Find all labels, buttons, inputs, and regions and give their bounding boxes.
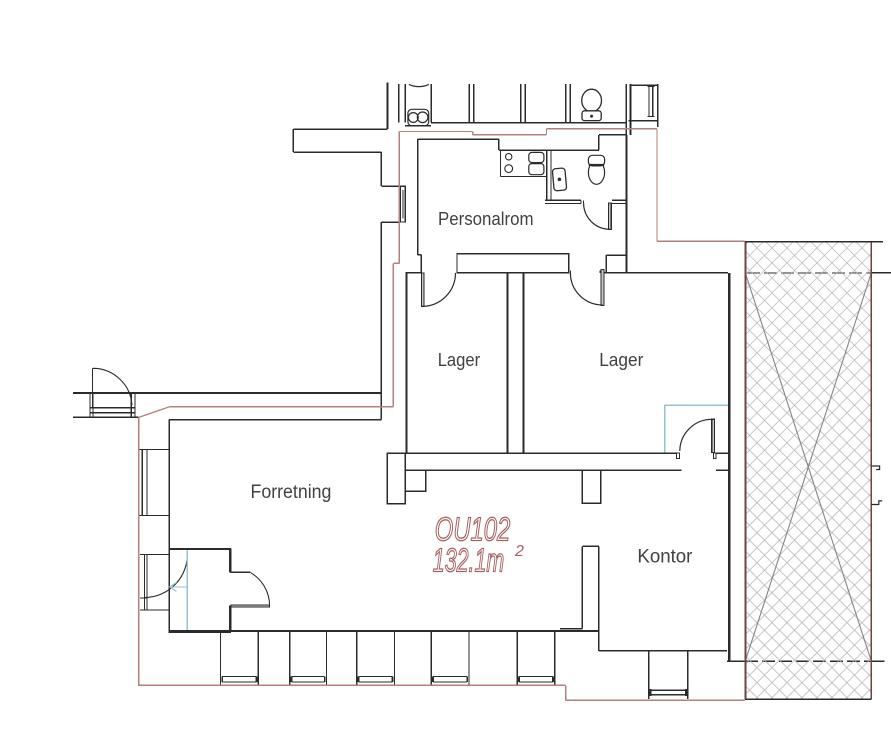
svg-text:Lager: Lager xyxy=(599,350,643,370)
svg-text:132.1m: 132.1m xyxy=(433,542,505,579)
svg-text:Forretning: Forretning xyxy=(251,482,332,503)
svg-text:Lager: Lager xyxy=(438,350,481,370)
svg-text:Personalrom: Personalrom xyxy=(438,209,534,229)
svg-text:2: 2 xyxy=(514,543,524,560)
svg-text:Kontor: Kontor xyxy=(637,547,693,568)
